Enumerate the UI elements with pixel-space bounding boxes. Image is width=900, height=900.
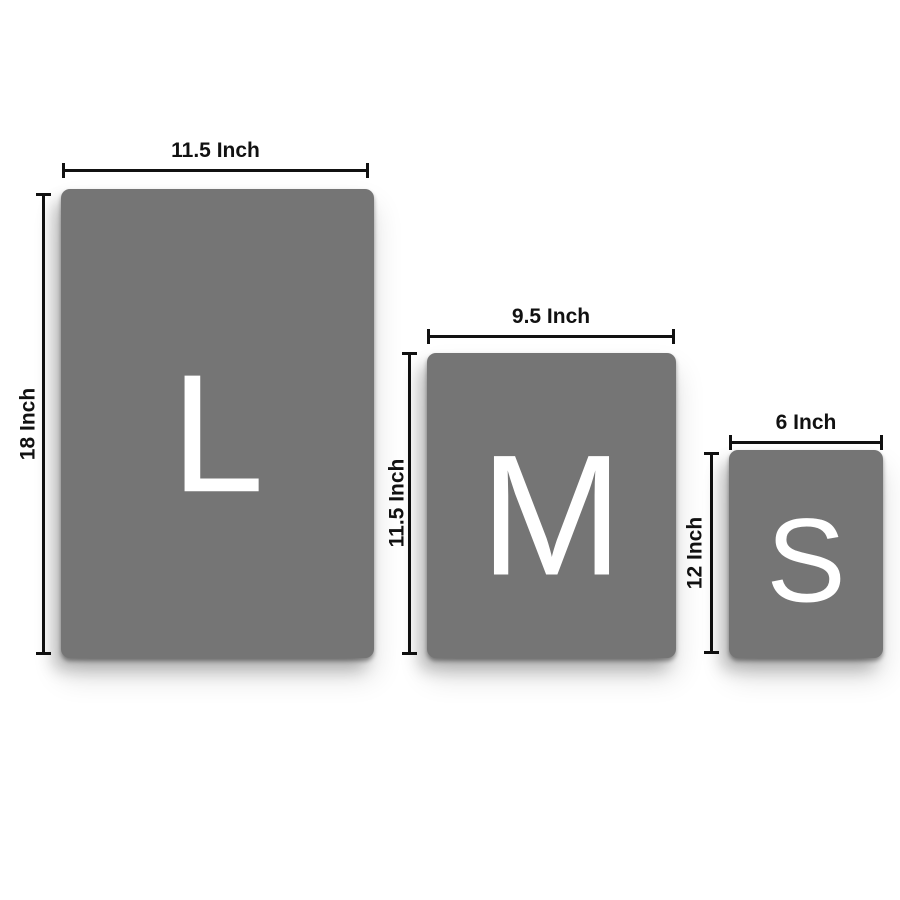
height-dimension-large xyxy=(42,193,45,655)
width-dimension-medium: 9.5 Inch xyxy=(427,302,675,338)
height-label-large: 18 Inch xyxy=(18,388,39,460)
height-label-small: 12 Inch xyxy=(685,517,706,589)
height-label-medium: 11.5 Inch xyxy=(387,459,408,548)
size-comparison-diagram: 11.5 Inch 18 Inch L 9.5 Inch 11.5 Inch M… xyxy=(0,0,900,900)
dimension-line-horizontal xyxy=(427,335,675,338)
panel-small-letter: S xyxy=(766,501,845,620)
width-label-small: 6 Inch xyxy=(729,412,883,433)
panel-large-letter: L xyxy=(171,349,264,517)
width-dimension-large: 11.5 Inch xyxy=(62,136,369,172)
width-label-large: 11.5 Inch xyxy=(62,140,369,161)
panel-medium-letter: M xyxy=(480,429,623,601)
width-label-medium: 9.5 Inch xyxy=(427,306,675,327)
height-dimension-small xyxy=(710,452,713,654)
dimension-line-horizontal xyxy=(62,169,369,172)
panel-small: S xyxy=(729,450,883,658)
panel-large: L xyxy=(61,189,374,658)
panel-medium: M xyxy=(427,353,676,658)
dimension-line-horizontal xyxy=(729,441,883,444)
width-dimension-small: 6 Inch xyxy=(729,408,883,444)
